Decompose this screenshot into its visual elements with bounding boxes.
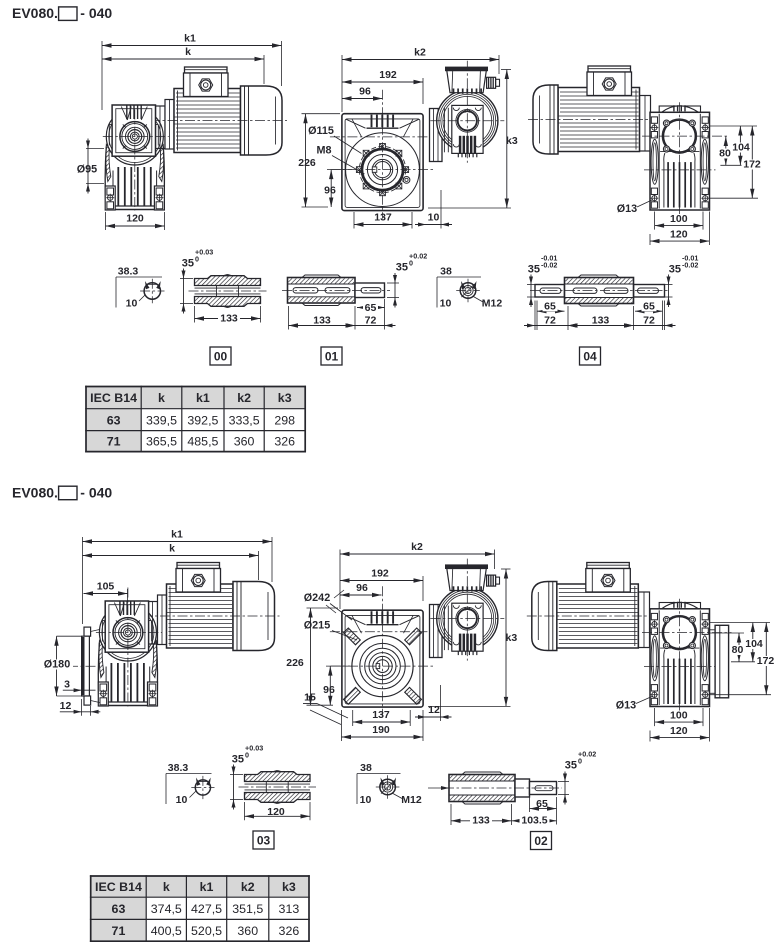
- svg-text:35: 35: [669, 264, 681, 276]
- svg-text:313: 313: [279, 902, 300, 916]
- svg-text:65: 65: [536, 798, 548, 810]
- svg-text:- 040: - 040: [80, 5, 112, 21]
- svg-text:k: k: [158, 391, 165, 405]
- svg-text:392,5: 392,5: [187, 413, 218, 427]
- svg-text:360: 360: [237, 924, 258, 938]
- svg-text:137: 137: [374, 212, 392, 224]
- svg-text:333,5: 333,5: [229, 413, 260, 427]
- svg-text:172: 172: [757, 655, 775, 667]
- svg-text:35: 35: [565, 760, 577, 772]
- svg-text:374,5: 374,5: [151, 902, 182, 916]
- svg-text:351,5: 351,5: [232, 902, 263, 916]
- svg-text:339,5: 339,5: [146, 413, 177, 427]
- svg-text:133: 133: [220, 313, 238, 325]
- svg-text:k2: k2: [241, 880, 255, 894]
- svg-text:k2: k2: [237, 391, 251, 405]
- svg-text:96: 96: [323, 684, 335, 696]
- svg-text:00: 00: [214, 349, 228, 363]
- svg-text:Ø13: Ø13: [616, 700, 636, 712]
- svg-text:65: 65: [643, 300, 655, 312]
- svg-text:03: 03: [257, 833, 271, 847]
- svg-text:104: 104: [745, 638, 763, 650]
- svg-text:12: 12: [428, 704, 440, 716]
- svg-text:k1: k1: [200, 880, 214, 894]
- svg-text:326: 326: [274, 435, 295, 449]
- svg-text:72: 72: [544, 315, 556, 327]
- svg-text:80: 80: [732, 644, 744, 656]
- svg-text:15: 15: [304, 692, 316, 704]
- svg-text:k3: k3: [506, 135, 518, 147]
- svg-text:172: 172: [743, 159, 761, 171]
- svg-text:EV080.: EV080.: [12, 485, 58, 501]
- svg-text:120: 120: [267, 806, 285, 818]
- svg-text:04: 04: [583, 349, 597, 363]
- svg-text:400,5: 400,5: [151, 924, 182, 938]
- svg-text:01: 01: [325, 349, 339, 363]
- svg-text:71: 71: [112, 924, 126, 938]
- svg-text:65: 65: [544, 300, 556, 312]
- svg-text:Ø180: Ø180: [44, 659, 70, 671]
- svg-text:326: 326: [279, 924, 300, 938]
- svg-text:100: 100: [670, 710, 688, 722]
- svg-text:520,5: 520,5: [191, 924, 222, 938]
- svg-text:96: 96: [324, 185, 336, 197]
- svg-text:35: 35: [528, 264, 540, 276]
- svg-text:-0.02: -0.02: [541, 261, 557, 270]
- svg-text:k2: k2: [414, 47, 426, 59]
- svg-text:365,5: 365,5: [146, 435, 177, 449]
- svg-text:96: 96: [359, 86, 371, 98]
- svg-text:k2: k2: [411, 541, 423, 553]
- svg-text:120: 120: [670, 725, 688, 737]
- svg-text:38: 38: [360, 762, 372, 774]
- svg-text:63: 63: [107, 413, 121, 427]
- svg-text:427,5: 427,5: [191, 902, 222, 916]
- svg-text:71: 71: [107, 435, 121, 449]
- svg-text:72: 72: [643, 315, 655, 327]
- svg-text:-0.02: -0.02: [682, 261, 698, 270]
- svg-text:190: 190: [372, 724, 390, 736]
- svg-text:38: 38: [440, 266, 452, 278]
- svg-text:226: 226: [286, 657, 304, 669]
- svg-text:02: 02: [534, 834, 548, 848]
- svg-text:k1: k1: [184, 33, 196, 45]
- svg-text:k: k: [169, 543, 175, 555]
- svg-text:10: 10: [126, 298, 138, 310]
- svg-text:M8: M8: [317, 145, 332, 157]
- svg-text:k1: k1: [171, 529, 183, 541]
- svg-text:137: 137: [372, 709, 390, 721]
- svg-text:35: 35: [232, 754, 244, 766]
- svg-text:Ø95: Ø95: [77, 164, 97, 176]
- svg-text:k3: k3: [506, 632, 518, 644]
- svg-text:10: 10: [440, 298, 452, 310]
- svg-text:Ø215: Ø215: [304, 620, 330, 632]
- svg-text:EV080.: EV080.: [12, 5, 58, 21]
- svg-text:63: 63: [112, 902, 126, 916]
- svg-text:133: 133: [313, 315, 331, 327]
- svg-text:133: 133: [472, 815, 490, 827]
- svg-text:100: 100: [670, 213, 688, 225]
- svg-text:105: 105: [97, 581, 115, 593]
- svg-text:360: 360: [234, 435, 255, 449]
- svg-text:0: 0: [245, 751, 249, 760]
- svg-text:Ø13: Ø13: [617, 203, 637, 215]
- svg-text:10: 10: [360, 794, 372, 806]
- svg-text:35: 35: [396, 262, 408, 274]
- svg-text:38.3: 38.3: [168, 762, 189, 774]
- svg-text:72: 72: [365, 315, 377, 327]
- svg-text:k: k: [185, 46, 191, 58]
- svg-text:12: 12: [60, 700, 72, 712]
- svg-text:M12: M12: [482, 298, 503, 310]
- svg-text:80: 80: [719, 148, 731, 160]
- svg-text:0: 0: [578, 757, 582, 766]
- svg-text:Ø115: Ø115: [308, 125, 334, 137]
- svg-text:133: 133: [592, 315, 610, 327]
- svg-text:120: 120: [126, 213, 144, 225]
- svg-text:485,5: 485,5: [187, 435, 218, 449]
- svg-text:96: 96: [356, 582, 368, 594]
- svg-text:38.3: 38.3: [118, 266, 139, 278]
- svg-text:65: 65: [365, 302, 377, 314]
- svg-text:298: 298: [274, 413, 295, 427]
- svg-text:0: 0: [409, 259, 413, 268]
- svg-text:120: 120: [670, 229, 688, 241]
- svg-text:Ø242: Ø242: [304, 592, 330, 604]
- svg-text:192: 192: [379, 69, 397, 81]
- svg-text:IEC B14: IEC B14: [90, 391, 137, 405]
- svg-text:3: 3: [64, 679, 70, 691]
- svg-text:M12: M12: [401, 794, 422, 806]
- svg-text:192: 192: [371, 568, 389, 580]
- svg-text:k3: k3: [282, 880, 296, 894]
- svg-text:IEC B14: IEC B14: [95, 880, 142, 894]
- svg-text:226: 226: [298, 157, 316, 169]
- svg-text:10: 10: [428, 212, 440, 224]
- svg-text:104: 104: [732, 142, 750, 154]
- svg-text:k: k: [163, 880, 170, 894]
- svg-text:k3: k3: [278, 391, 292, 405]
- svg-text:k1: k1: [196, 391, 210, 405]
- svg-text:10: 10: [176, 794, 188, 806]
- svg-text:103.5: 103.5: [521, 815, 547, 827]
- svg-text:- 040: - 040: [80, 485, 112, 501]
- svg-text:0: 0: [195, 255, 199, 264]
- svg-text:35: 35: [182, 258, 194, 270]
